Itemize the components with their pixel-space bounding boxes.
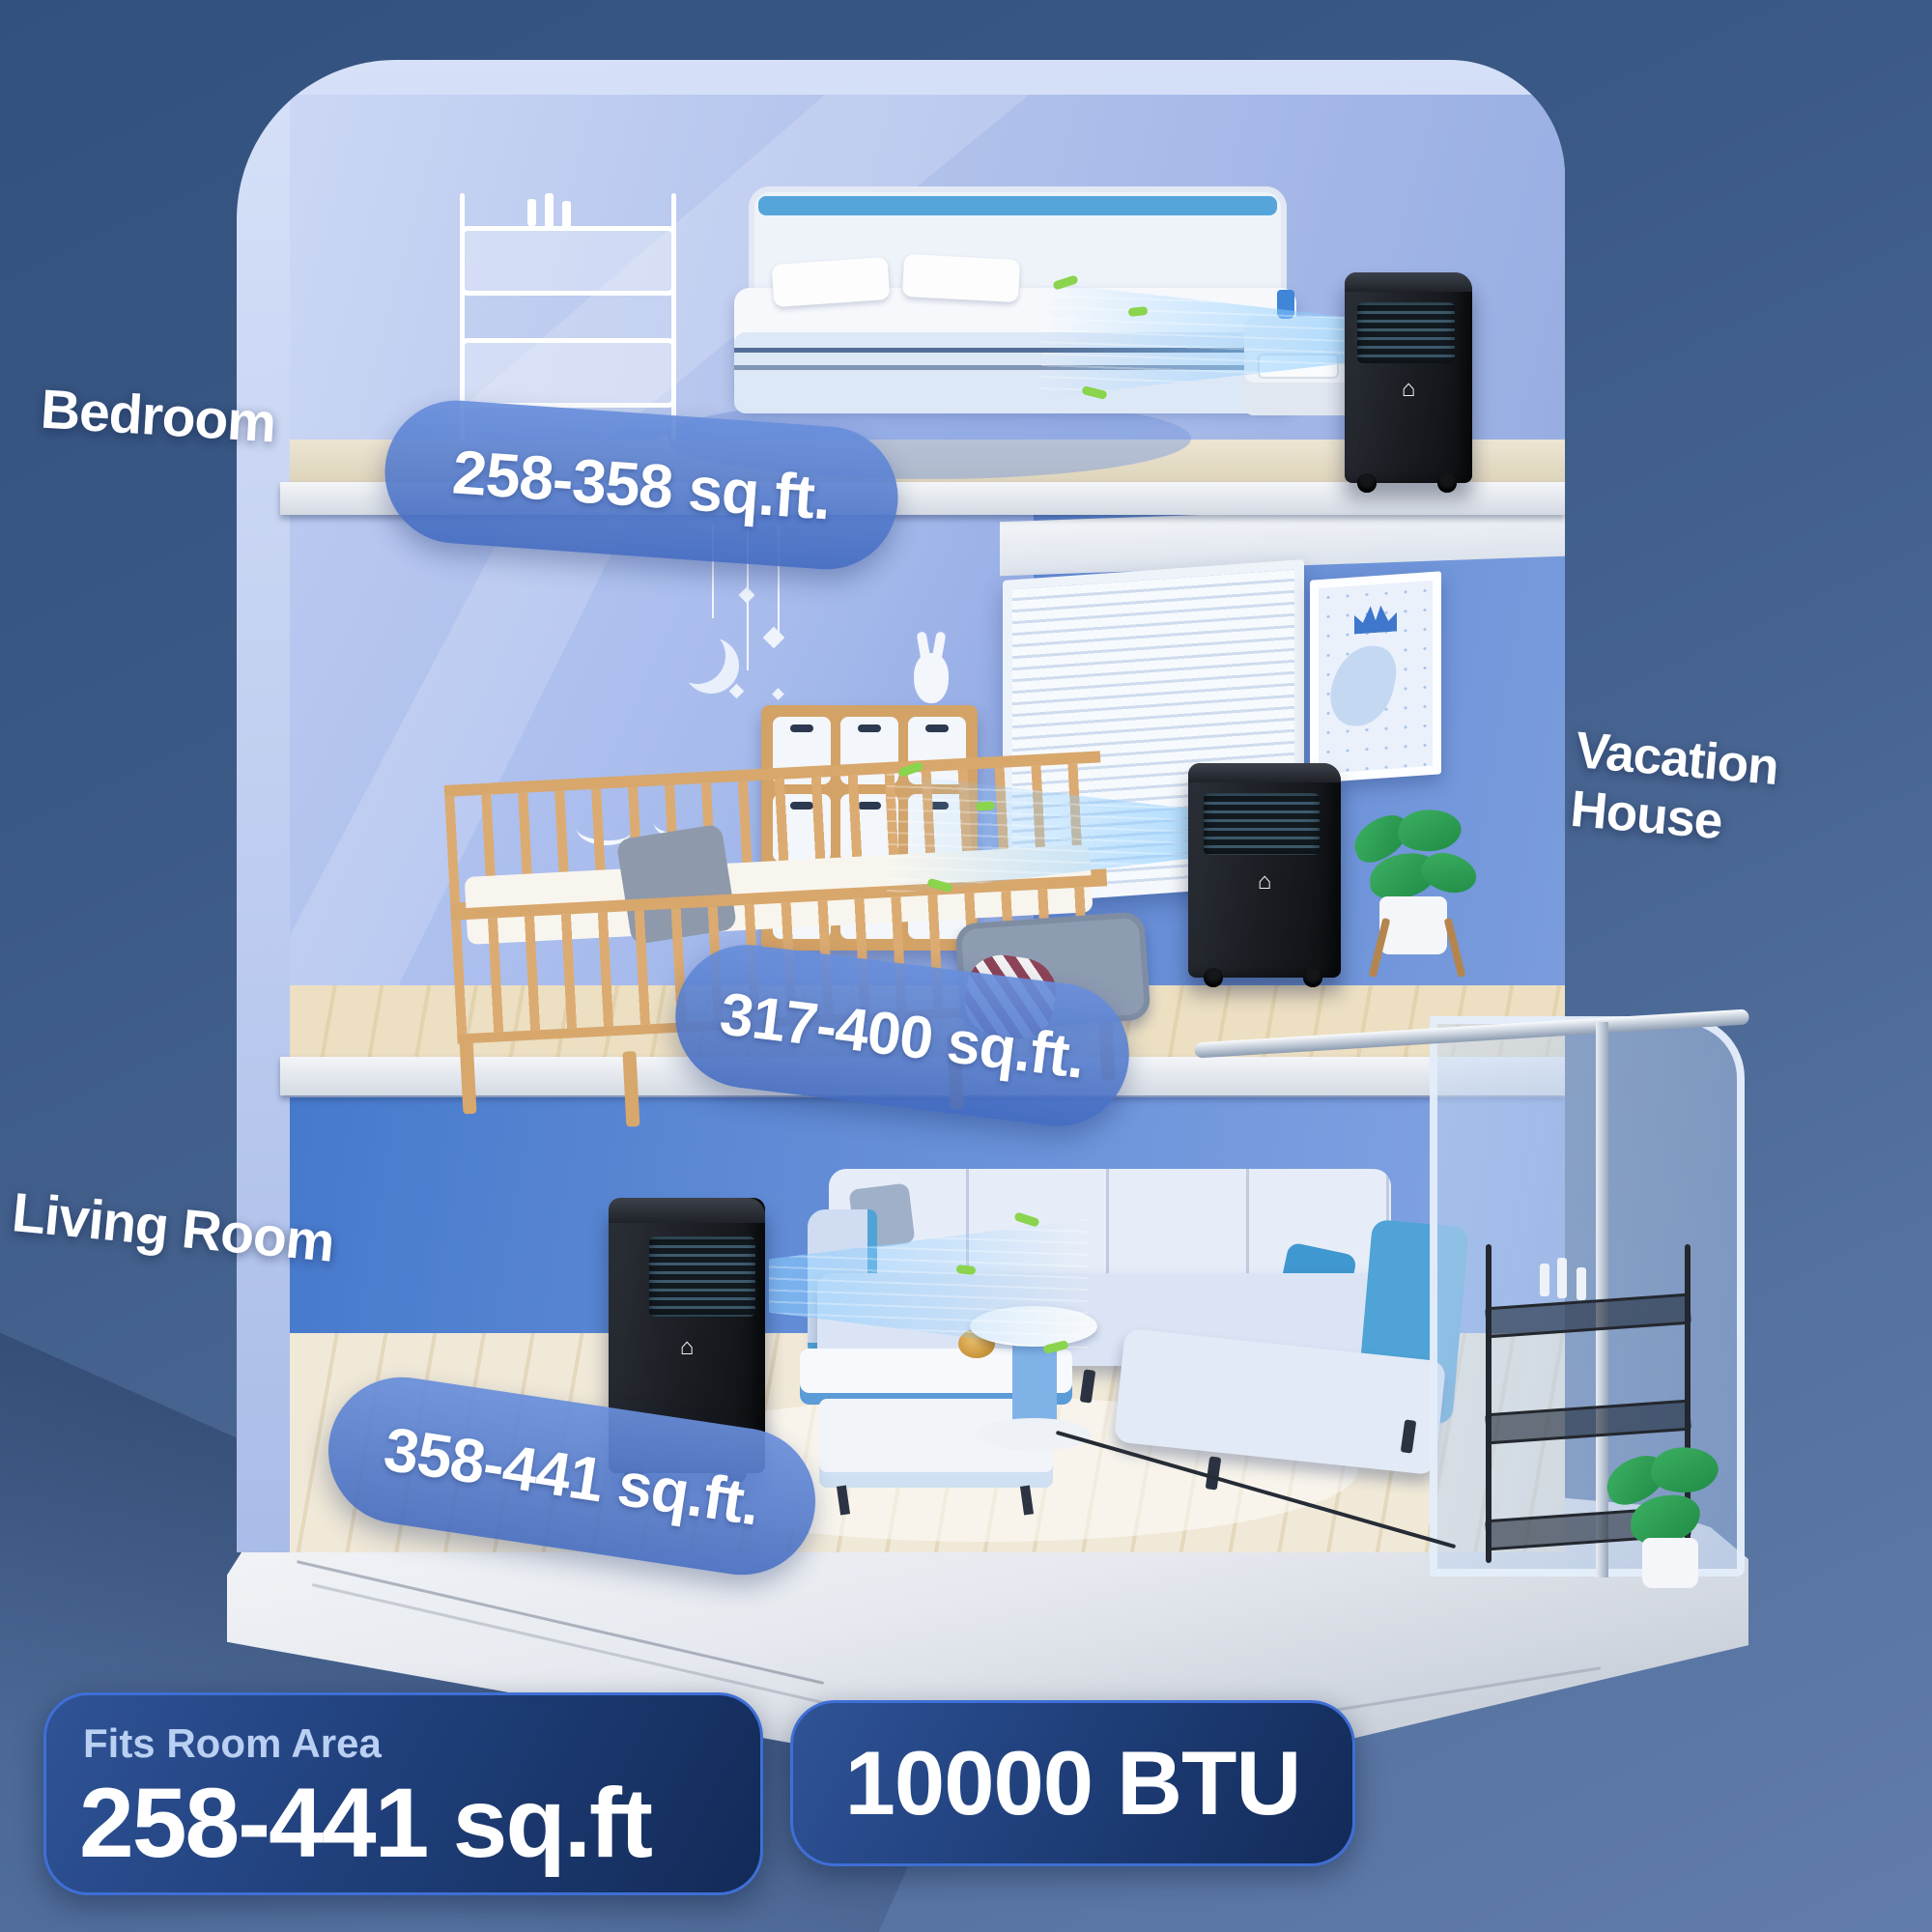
ac-vent-grille <box>1204 793 1320 855</box>
bed-pillow <box>902 254 1020 302</box>
plant-pot <box>1379 896 1447 954</box>
cart-basket <box>460 338 676 408</box>
fits-room-area-badge: Fits Room Area 258-441 sq.ft <box>43 1692 763 1895</box>
cart-basket <box>460 226 676 296</box>
brand-logo-icon: ⌂ <box>680 1336 695 1359</box>
wall-picture-frame <box>1310 571 1441 783</box>
ac-vent-grille <box>1357 302 1454 363</box>
cart-post <box>1486 1244 1492 1563</box>
cart-shelf <box>1485 1293 1691 1339</box>
plant-pot <box>1642 1538 1698 1588</box>
brand-logo-icon: ⌂ <box>1402 378 1416 401</box>
bottle <box>1557 1258 1567 1298</box>
bottle <box>1577 1267 1586 1300</box>
side-table-base <box>976 1418 1092 1451</box>
btu-value: 10000 BTU <box>793 1703 1352 1863</box>
ac-unit-vacation-house: ⌂ <box>1188 763 1341 978</box>
crib-leg <box>622 1051 639 1127</box>
fits-room-area-label: Fits Room Area <box>83 1720 382 1767</box>
crib-leg <box>459 1038 476 1115</box>
btu-badge: 10000 BTU <box>790 1700 1355 1866</box>
bunny-plush <box>914 653 949 703</box>
bottle <box>545 193 554 228</box>
ac-vent-grille <box>649 1236 755 1317</box>
ac-caster <box>1303 968 1322 987</box>
moon-decal-icon <box>669 628 725 684</box>
product-infographic: ⌂ ⌂ <box>0 0 1932 1932</box>
bottle <box>1540 1264 1549 1296</box>
leaf-icon <box>976 801 996 810</box>
bed-pillow <box>772 257 891 307</box>
ac-caster <box>1204 968 1223 987</box>
bottle <box>562 201 571 228</box>
brand-logo-icon: ⌂ <box>1258 870 1272 894</box>
label-bedroom: Bedroom <box>39 378 277 456</box>
fits-room-area-value: 258-441 sq.ft <box>79 1767 651 1880</box>
bottle <box>527 199 536 226</box>
ac-unit-bedroom: ⌂ <box>1345 272 1472 483</box>
label-vacation-house: Vacation House <box>1568 721 1932 869</box>
headboard-accent <box>758 196 1277 215</box>
leaf-icon <box>956 1264 977 1275</box>
cart-shelf <box>1485 1400 1691 1445</box>
